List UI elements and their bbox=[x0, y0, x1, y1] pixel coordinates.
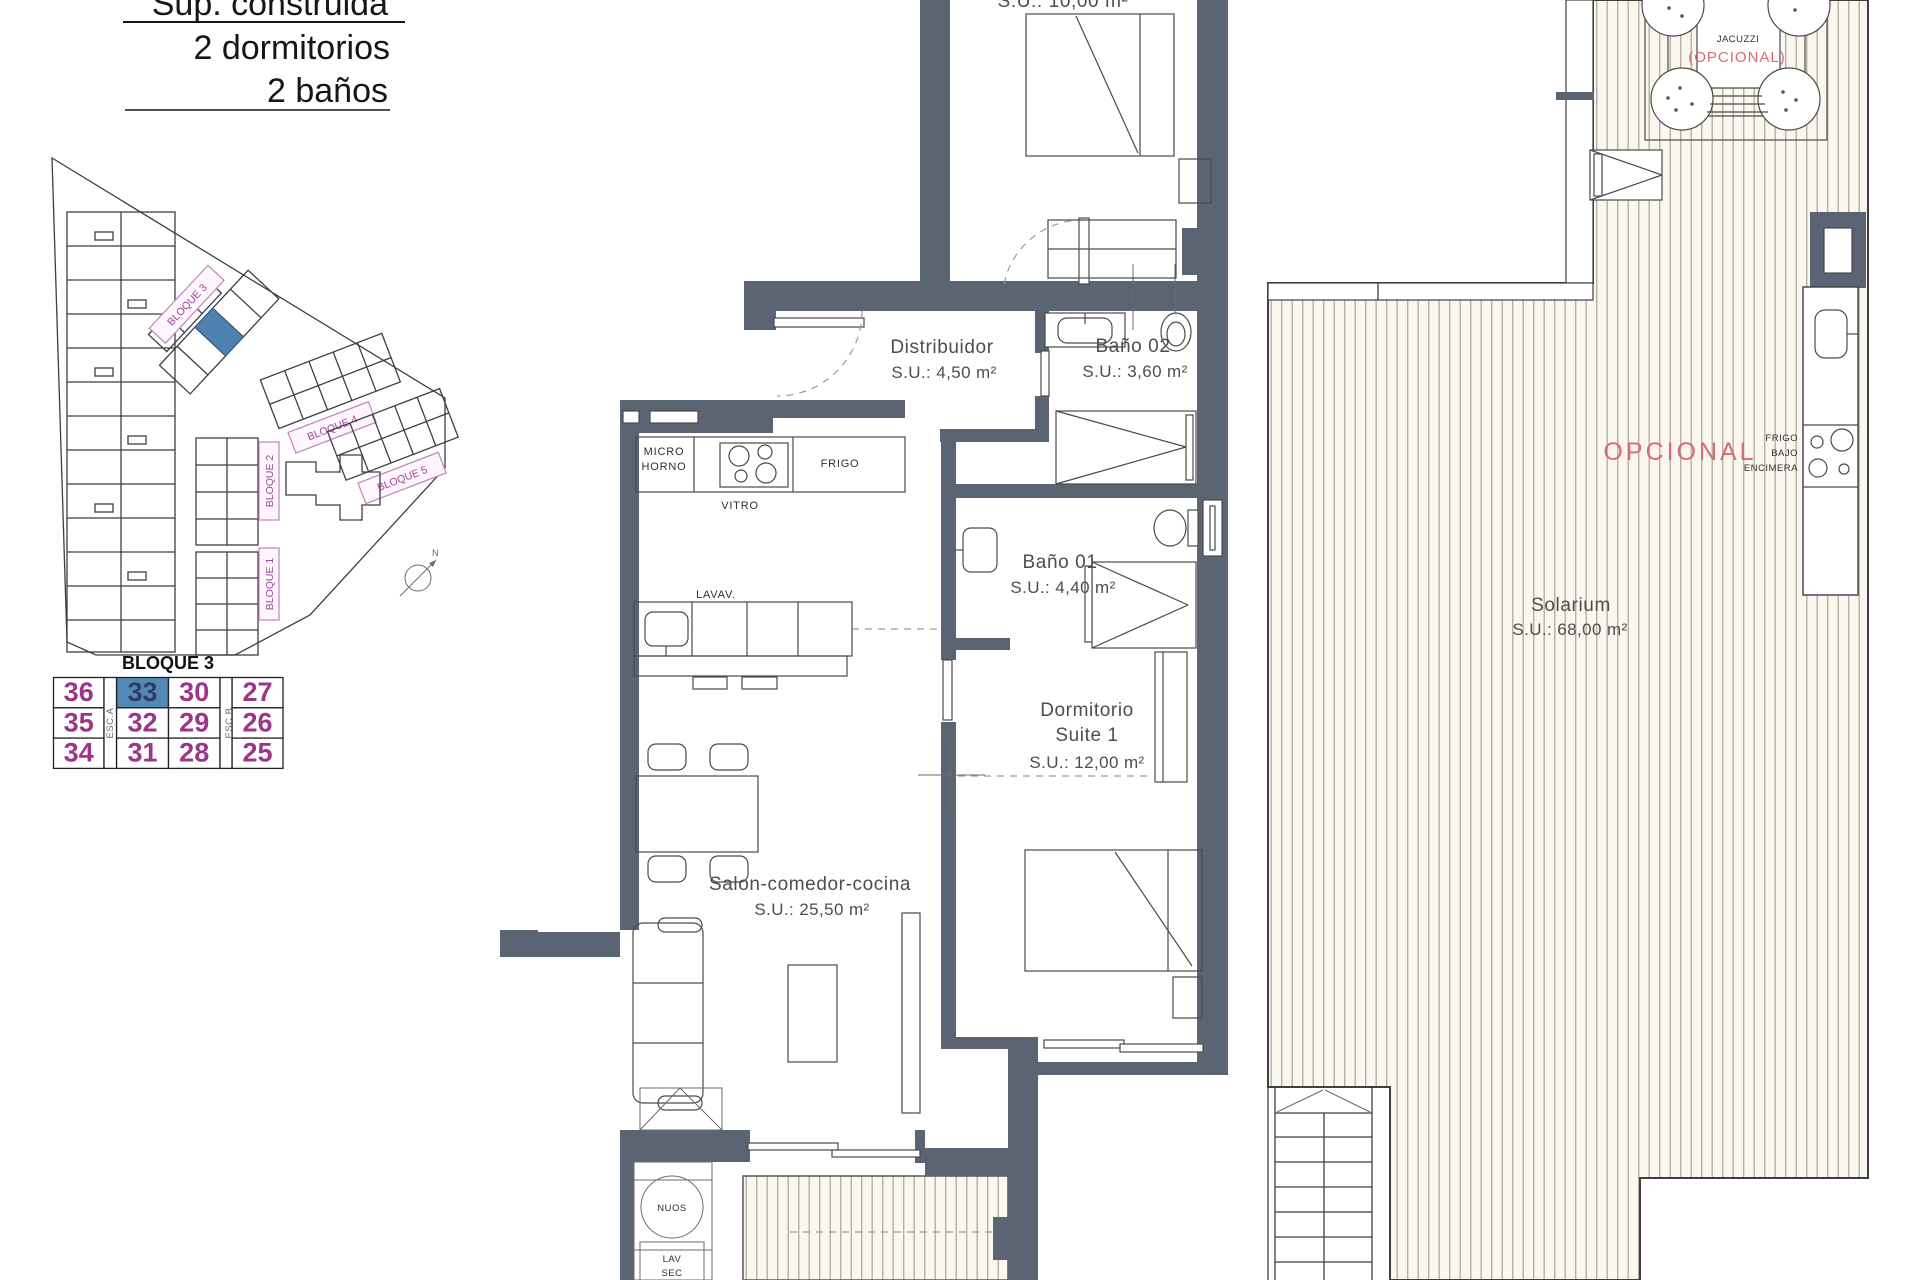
jacuzzi-label: JACUZZI bbox=[1717, 34, 1760, 45]
distribuidor-label: Distribuidor bbox=[890, 337, 993, 358]
chair-icon bbox=[648, 744, 686, 770]
bloque1-label: BLOQUE 1 bbox=[264, 558, 276, 611]
north-label: N bbox=[432, 548, 439, 559]
solarium-label: Solarium bbox=[1531, 595, 1611, 616]
header-surface-label: Sup. construida bbox=[152, 0, 388, 23]
main-floor-plan: S.U.: 10,00 m² Distribuidor S.U.: 4,50 m… bbox=[500, 0, 1228, 1280]
lavav-label: LAVAV. bbox=[696, 589, 736, 601]
unit-number: 35 bbox=[64, 707, 94, 737]
kitchen bbox=[634, 437, 941, 689]
shaft bbox=[1810, 212, 1866, 288]
salon-furniture bbox=[633, 744, 920, 1130]
floorplan-drawing: Sup. construida 2 dormitorios 2 baños bbox=[0, 0, 1920, 1280]
unit-number: 28 bbox=[179, 738, 209, 768]
sink-icon bbox=[963, 528, 997, 572]
tv-unit bbox=[902, 913, 920, 1113]
solarium-area: S.U.: 68,00 m² bbox=[1512, 620, 1627, 639]
stairs bbox=[1268, 1087, 1372, 1280]
header: Sup. construida 2 dormitorios 2 baños bbox=[123, 0, 405, 110]
bbq-label-1: FRIGO bbox=[1765, 433, 1798, 444]
bbq-label-2: BAJO bbox=[1771, 448, 1798, 459]
balcony-strip bbox=[1566, 0, 1593, 283]
outdoor-kitchen-counter bbox=[1803, 287, 1858, 595]
site-units-bloque1 bbox=[196, 552, 258, 655]
bathroom2-area: S.U.: 3,60 m² bbox=[1082, 362, 1187, 381]
closet bbox=[1155, 652, 1187, 782]
bathroom2-label: Baño 02 bbox=[1096, 336, 1171, 357]
terrace-deck bbox=[743, 1176, 1008, 1280]
sink-icon bbox=[645, 612, 688, 646]
salon-area: S.U.: 25,50 m² bbox=[754, 900, 869, 919]
coffee-table bbox=[788, 965, 837, 1062]
suite-area: S.U.: 12,00 m² bbox=[1029, 753, 1144, 772]
dining-table bbox=[636, 776, 758, 852]
vitro-label: VITRO bbox=[721, 500, 759, 512]
jacuzzi-optional-label: (OPCIONAL) bbox=[1688, 49, 1786, 66]
bedroom2-area-label: S.U.: 10,00 m² bbox=[998, 0, 1129, 12]
stair-core-b-label: ESC.B bbox=[224, 707, 235, 738]
lintel bbox=[1556, 92, 1594, 100]
suite-label-1: Dormitorio bbox=[1040, 700, 1134, 721]
deck-edge-band bbox=[1268, 283, 1593, 300]
unit-table-title: BLOQUE 3 bbox=[122, 653, 214, 673]
chair-icon bbox=[648, 856, 686, 882]
hob-icon bbox=[720, 443, 788, 487]
unit-table: BLOQUE 3 ESC.A ESC.B 36 33 30 27 35 32 2… bbox=[54, 653, 284, 768]
micro-label: MICRO bbox=[644, 446, 685, 458]
sofa-icon bbox=[633, 923, 703, 1103]
roof-access-marker bbox=[1590, 150, 1662, 200]
site-units-left-block bbox=[67, 212, 175, 652]
salon-label: Salon-comedor-cocina bbox=[709, 874, 911, 895]
site-units-bloque5: BLOQUE 5 bbox=[328, 389, 469, 508]
unit-number: 30 bbox=[179, 677, 209, 707]
door-leaf bbox=[1041, 351, 1049, 396]
bloque2-label: BLOQUE 2 bbox=[264, 455, 276, 508]
lav-label: LAV bbox=[663, 1254, 682, 1265]
stair-core-a-label: ESC.A bbox=[105, 707, 116, 738]
header-bathrooms: 2 baños bbox=[267, 72, 388, 110]
header-bedrooms: 2 dormitorios bbox=[193, 29, 390, 67]
bathroom1-area: S.U.: 4,40 m² bbox=[1010, 578, 1115, 597]
north-compass-icon: N bbox=[400, 548, 439, 596]
nuos-label: NUOS bbox=[657, 1203, 686, 1214]
solarium-plan: JACUZZI (OPCIONAL) FRIGO BAJO ENCIMERA O… bbox=[1268, 0, 1868, 1280]
door-leaf bbox=[943, 660, 952, 720]
site-units-bloque2 bbox=[196, 438, 258, 545]
opcional-label: OPCIONAL bbox=[1603, 438, 1756, 466]
shower-icon bbox=[1056, 411, 1196, 484]
unit-number: 31 bbox=[127, 738, 157, 768]
unit-number: 26 bbox=[242, 707, 272, 737]
unit-number: 27 bbox=[242, 677, 272, 707]
site-units-bloque4: BLOQUE 4 bbox=[260, 333, 410, 455]
bathroom1-label: Baño 01 bbox=[1023, 552, 1098, 573]
unit-number-selected: 33 bbox=[127, 677, 157, 707]
unit-number: 25 bbox=[242, 738, 272, 768]
toilet-icon bbox=[1154, 510, 1186, 546]
highlighted-unit-33 bbox=[195, 308, 243, 356]
unit-number: 36 bbox=[64, 677, 94, 707]
horno-label: HORNO bbox=[642, 461, 687, 473]
bed-icon bbox=[1025, 850, 1202, 971]
unit-number: 32 bbox=[127, 707, 157, 737]
site-plan: BLOQUE 2 BLOQUE 1 BLOQUE 3 bbox=[52, 158, 469, 655]
floorplan-page: { "header": { "title_line": "Sup. constr… bbox=[0, 0, 1920, 1280]
chair-icon bbox=[710, 744, 748, 770]
shower-icon bbox=[1092, 562, 1196, 648]
frigo-label: FRIGO bbox=[821, 458, 860, 470]
distribuidor-area: S.U.: 4,50 m² bbox=[891, 363, 996, 382]
sec-label: SEC bbox=[661, 1268, 682, 1279]
unit-number: 34 bbox=[64, 738, 94, 768]
suite-label-2: Suite 1 bbox=[1055, 725, 1118, 746]
sink-icon bbox=[1815, 310, 1847, 358]
unit-number: 29 bbox=[179, 707, 209, 737]
